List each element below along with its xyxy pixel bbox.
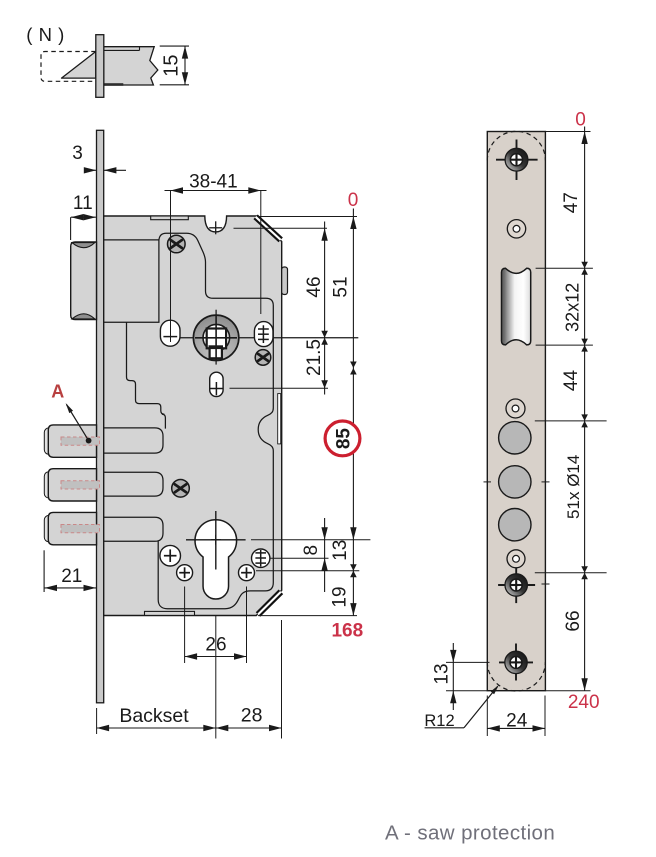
svg-text:47: 47	[561, 192, 582, 213]
svg-text:A: A	[51, 382, 64, 402]
svg-text:44: 44	[561, 370, 582, 392]
svg-text:13: 13	[330, 540, 351, 561]
svg-text:3: 3	[72, 143, 83, 164]
svg-text:168: 168	[331, 621, 363, 642]
svg-text:0: 0	[575, 110, 586, 131]
svg-text:Backset: Backset	[119, 705, 189, 727]
svg-text:13: 13	[432, 663, 453, 684]
svg-text:240: 240	[568, 692, 600, 713]
svg-text:15: 15	[160, 54, 182, 76]
svg-text:( N ): ( N )	[26, 24, 64, 45]
svg-text:46: 46	[304, 276, 325, 297]
svg-text:32x12: 32x12	[563, 283, 583, 332]
svg-text:21: 21	[61, 566, 82, 587]
svg-text:R12: R12	[424, 712, 454, 730]
svg-text:85: 85	[333, 428, 354, 450]
svg-text:19: 19	[329, 586, 350, 607]
svg-text:8: 8	[301, 545, 322, 556]
svg-text:A - saw protection: A - saw protection	[385, 822, 555, 845]
svg-text:0: 0	[348, 190, 359, 211]
svg-text:51x Ø14: 51x Ø14	[564, 455, 583, 519]
svg-text:38-41: 38-41	[189, 172, 238, 193]
svg-text:24: 24	[506, 711, 528, 732]
svg-text:66: 66	[563, 610, 584, 631]
svg-text:21.5: 21.5	[304, 339, 325, 376]
svg-text:51: 51	[331, 276, 352, 297]
svg-text:11: 11	[73, 193, 93, 214]
svg-text:28: 28	[241, 704, 263, 726]
